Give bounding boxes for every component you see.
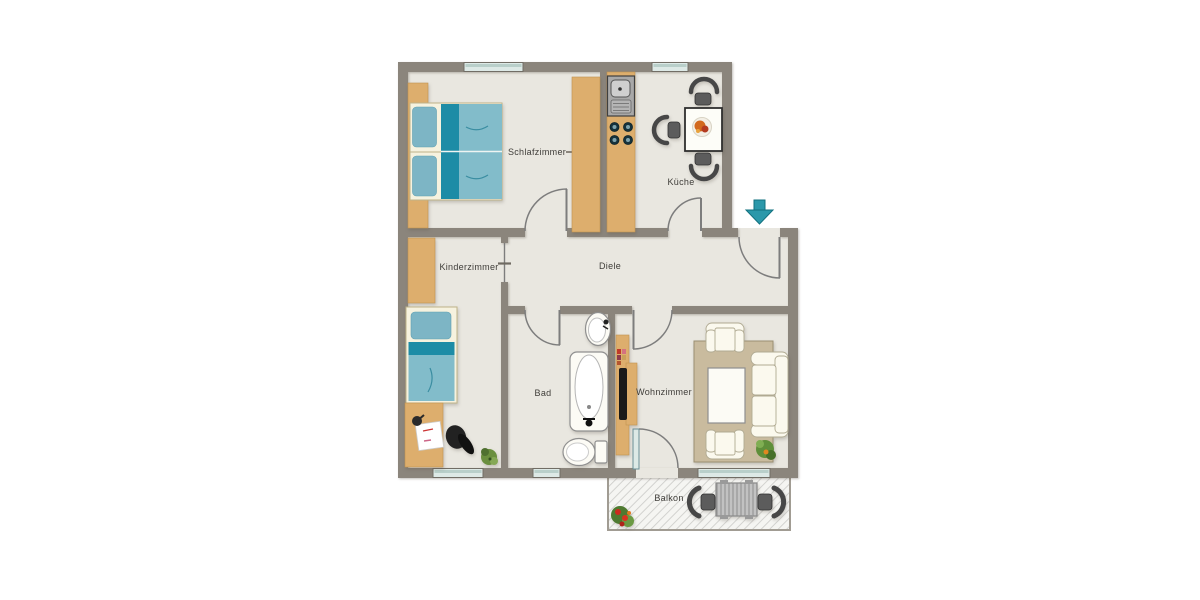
room-label-bad: Bad	[535, 388, 552, 398]
built-in-closet-schlafzimmer	[572, 77, 600, 232]
kitchen-sink	[608, 76, 635, 116]
armchair-top	[706, 323, 744, 352]
window-balkon	[698, 469, 770, 478]
desk	[405, 403, 444, 467]
room-label-kueche: Küche	[667, 177, 694, 187]
window-schlafzimmer	[464, 63, 523, 72]
bathroom-sink	[586, 313, 611, 346]
double-bed	[410, 103, 502, 200]
armchair-bottom	[706, 430, 744, 459]
room-label-wohnzimmer: Wohnzimmer	[636, 387, 692, 397]
single-bed	[406, 307, 457, 403]
room-label-diele: Diele	[599, 261, 621, 271]
balcony-door-threshold	[636, 468, 678, 478]
room-label-schlafzimmer: Schlafzimmer	[508, 147, 566, 157]
window-kinderzimmer	[433, 469, 483, 478]
entrance-arrow-icon	[746, 200, 773, 224]
toilet	[563, 439, 607, 466]
dining-table	[685, 108, 722, 151]
floor-plan-drawing	[0, 0, 1200, 600]
tv	[619, 368, 627, 420]
window-kueche	[652, 63, 688, 72]
wardrobe-kinderzimmer	[408, 238, 435, 303]
floor-plan-canvas: Schlafzimmer Küche Kinderzimmer Diele Ba…	[0, 0, 1200, 600]
balcony-table	[716, 480, 757, 519]
bathtub	[570, 352, 608, 431]
window-bad	[533, 469, 560, 478]
sofa	[751, 352, 788, 437]
coffee-table	[708, 368, 745, 423]
room-label-kinderzimmer: Kinderzimmer	[439, 262, 498, 272]
room-label-balkon: Balkon	[654, 493, 683, 503]
